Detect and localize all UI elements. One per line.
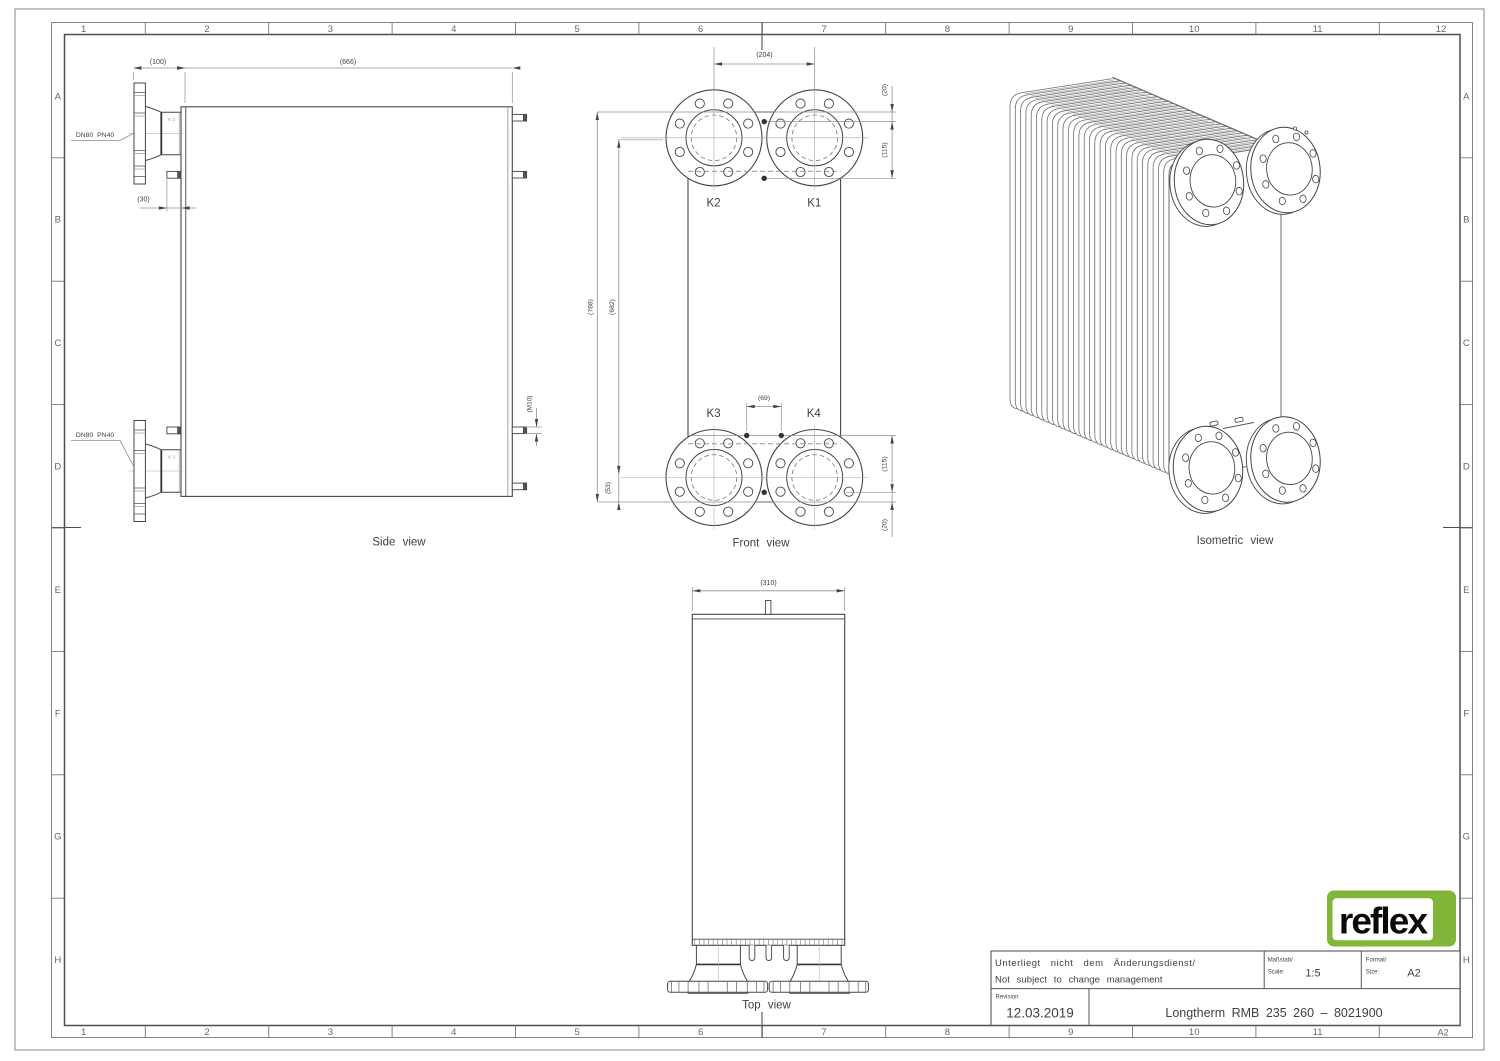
svg-text:B: B — [1463, 215, 1469, 226]
svg-text:Maßstab/: Maßstab/ — [1268, 958, 1293, 964]
svg-text:(M10): (M10) — [527, 396, 534, 413]
svg-text:C: C — [1463, 338, 1470, 349]
svg-text:G: G — [54, 832, 61, 843]
svg-text:(20): (20) — [882, 519, 889, 531]
svg-text:A2: A2 — [1407, 968, 1420, 980]
svg-text:K4: K4 — [807, 408, 822, 420]
svg-text:1:5: 1:5 — [1305, 968, 1320, 980]
svg-text:A: A — [55, 91, 62, 102]
svg-text:Not subject to change manageme: Not subject to change management — [995, 975, 1163, 986]
svg-text:DN80 PN40: DN80 PN40 — [76, 432, 114, 439]
svg-text:12: 12 — [1436, 24, 1447, 35]
svg-text:K 2: K 2 — [168, 117, 176, 122]
svg-text:(53): (53) — [605, 482, 612, 494]
svg-text:9: 9 — [1068, 24, 1073, 35]
svg-text:(69): (69) — [758, 395, 770, 402]
svg-text:F: F — [1463, 708, 1469, 719]
svg-text:8: 8 — [945, 24, 950, 35]
svg-text:Side view: Side view — [372, 537, 426, 549]
svg-text:1: 1 — [81, 24, 86, 35]
svg-text:1: 1 — [81, 1027, 86, 1038]
svg-text:8: 8 — [945, 1027, 950, 1038]
svg-text:D: D — [1463, 462, 1470, 473]
svg-text:(20): (20) — [882, 84, 889, 96]
svg-text:E: E — [1463, 585, 1469, 596]
svg-text:Scale:: Scale: — [1268, 970, 1285, 976]
svg-text:H: H — [54, 955, 61, 966]
svg-text:E: E — [55, 585, 61, 596]
svg-text:Longtherm RMB 235 260 – 802190: Longtherm RMB 235 260 – 8021900 — [1165, 1006, 1382, 1020]
svg-text:K1: K1 — [807, 198, 821, 210]
svg-text:(115): (115) — [882, 456, 889, 471]
svg-text:B: B — [55, 215, 61, 226]
svg-text:5: 5 — [575, 1027, 580, 1038]
svg-text:7: 7 — [821, 24, 826, 35]
svg-text:12.03.2019: 12.03.2019 — [1006, 1006, 1074, 1021]
svg-text:Size:: Size: — [1366, 970, 1380, 976]
svg-text:(788): (788) — [588, 299, 595, 315]
svg-text:Format/: Format/ — [1366, 958, 1387, 964]
svg-text:G: G — [1463, 832, 1470, 843]
svg-text:11: 11 — [1313, 24, 1323, 35]
svg-text:(682): (682) — [609, 299, 616, 315]
svg-text:reflex: reflex — [1339, 901, 1429, 942]
svg-text:4: 4 — [451, 24, 456, 35]
svg-text:F: F — [55, 708, 61, 719]
svg-text:6: 6 — [698, 24, 703, 35]
svg-text:D: D — [54, 462, 61, 473]
svg-text:7: 7 — [821, 1027, 826, 1038]
svg-text:3: 3 — [328, 24, 333, 35]
svg-text:(310): (310) — [760, 580, 776, 587]
svg-text:(204): (204) — [756, 52, 772, 59]
svg-text:(115): (115) — [882, 142, 889, 157]
svg-text:Revision: Revision — [996, 995, 1019, 1001]
svg-text:H: H — [1463, 955, 1470, 966]
svg-text:11: 11 — [1313, 1027, 1323, 1038]
svg-text:C: C — [54, 338, 61, 349]
svg-text:2: 2 — [204, 24, 209, 35]
svg-text:K 3: K 3 — [168, 455, 176, 460]
svg-text:DN80 PN40: DN80 PN40 — [76, 132, 114, 139]
svg-text:6: 6 — [698, 1027, 703, 1038]
svg-text:Unterliegt nicht dem Änderungs: Unterliegt nicht dem Änderungsdienst/ — [995, 958, 1196, 969]
svg-text:Top view: Top view — [742, 1000, 791, 1012]
svg-text:10: 10 — [1189, 24, 1200, 35]
svg-text:K2: K2 — [707, 198, 721, 210]
svg-text:3: 3 — [328, 1027, 333, 1038]
svg-text:A: A — [1463, 91, 1470, 102]
svg-text:9: 9 — [1068, 1027, 1073, 1038]
svg-text:4: 4 — [451, 1027, 456, 1038]
svg-text:(666): (666) — [340, 59, 356, 66]
svg-text:K3: K3 — [707, 408, 721, 420]
svg-text:A2: A2 — [1437, 1028, 1448, 1038]
svg-text:10: 10 — [1189, 1027, 1200, 1038]
svg-text:Isometric view: Isometric view — [1197, 535, 1275, 547]
svg-text:(100): (100) — [150, 59, 166, 66]
svg-text:(30): (30) — [137, 197, 149, 204]
svg-text:5: 5 — [575, 24, 580, 35]
svg-text:Front view: Front view — [732, 538, 790, 550]
svg-text:2: 2 — [204, 1027, 209, 1038]
